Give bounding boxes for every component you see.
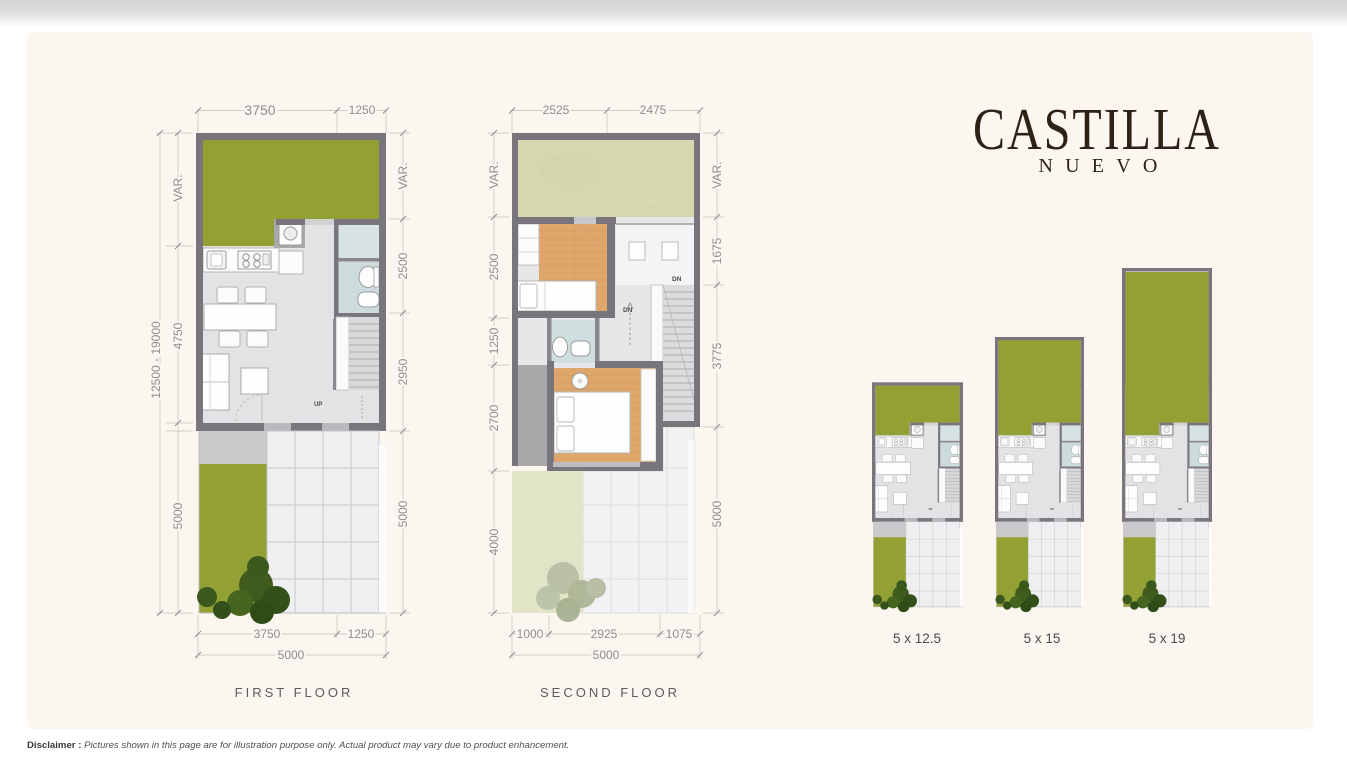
svg-text:5000: 5000 [396,500,410,527]
svg-text:FIRST FLOOR: FIRST FLOOR [235,685,354,700]
svg-text:12500 - 19000: 12500 - 19000 [149,321,163,399]
svg-text:3750: 3750 [244,102,275,118]
svg-text:5 x 19: 5 x 19 [1149,631,1186,646]
svg-text:VAR.: VAR. [396,162,410,189]
svg-text:NUEVO: NUEVO [1039,155,1170,177]
svg-text:5000: 5000 [278,648,305,662]
svg-text:VAR.: VAR. [171,174,185,201]
svg-text:CASTILLA: CASTILLA [973,96,1221,162]
svg-text:5 x 12.5: 5 x 12.5 [893,631,941,646]
svg-text:SECOND FLOOR: SECOND FLOOR [540,685,680,700]
svg-text:5000: 5000 [593,648,620,662]
svg-text:2500: 2500 [396,252,410,279]
svg-text:5000: 5000 [171,502,185,529]
svg-text:1250: 1250 [349,103,376,117]
svg-text:4750: 4750 [171,322,185,349]
svg-text:3775: 3775 [710,342,724,369]
svg-text:VAR.: VAR. [487,161,501,188]
svg-text:2700: 2700 [487,404,501,431]
svg-text:2525: 2525 [543,103,570,117]
svg-text:DN: DN [672,276,682,283]
svg-text:2925: 2925 [591,627,618,641]
svg-text:1075: 1075 [666,627,693,641]
svg-text:2500: 2500 [487,253,501,280]
svg-text:5000: 5000 [710,500,724,527]
svg-text:Disclaimer : Pictures shown in: Disclaimer : Pictures shown in this page… [27,740,569,751]
svg-text:4000: 4000 [487,528,501,555]
svg-text:VAR.: VAR. [710,161,724,188]
svg-text:5 x 15: 5 x 15 [1024,631,1061,646]
svg-text:1250: 1250 [487,327,501,354]
svg-text:1000: 1000 [517,627,544,641]
svg-text:2950: 2950 [396,358,410,385]
svg-text:UP: UP [314,402,322,408]
svg-text:1675: 1675 [710,237,724,264]
svg-text:2475: 2475 [640,103,667,117]
svg-text:3750: 3750 [254,627,281,641]
svg-text:1250: 1250 [348,627,375,641]
